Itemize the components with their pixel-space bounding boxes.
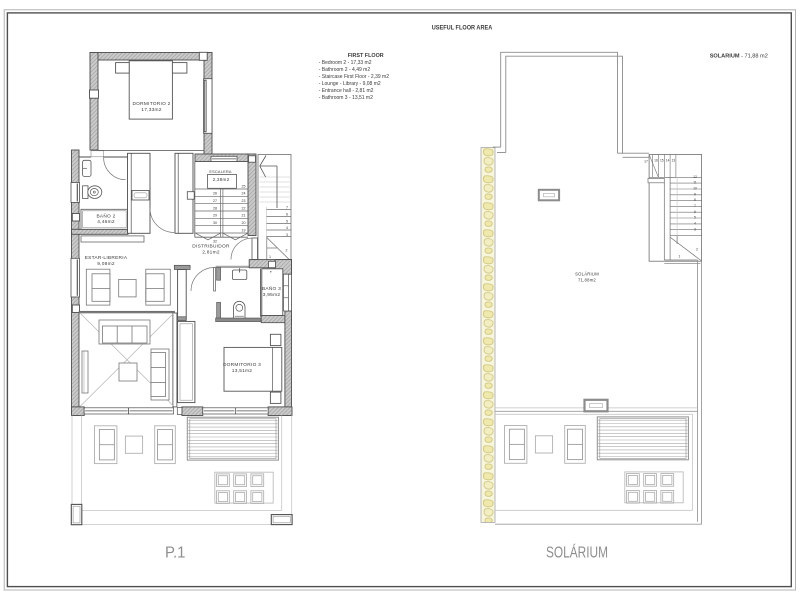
svg-text:26: 26 — [213, 192, 217, 196]
svg-text:2: 2 — [286, 249, 288, 253]
svg-text:- Staircase First Floor - 2,39: - Staircase First Floor - 2,39 m2 — [319, 74, 390, 80]
svg-text:SOLARIUM - 71,88 m2: SOLARIUM - 71,88 m2 — [710, 53, 768, 59]
svg-text:13,51m2: 13,51m2 — [232, 368, 252, 374]
svg-text:28: 28 — [213, 206, 217, 210]
svg-text:4,46m2: 4,46m2 — [97, 219, 115, 225]
svg-text:23: 23 — [242, 199, 246, 203]
svg-text:15: 15 — [660, 158, 664, 162]
svg-text:9,08m2: 9,08m2 — [97, 261, 115, 267]
svg-text:3: 3 — [694, 227, 696, 231]
svg-text:DORMITORIO 3: DORMITORIO 3 — [223, 362, 261, 368]
svg-text:4: 4 — [286, 226, 288, 230]
svg-text:20: 20 — [242, 221, 246, 225]
svg-text:29: 29 — [213, 214, 217, 218]
svg-text:- Lounge - Library - 9,08 m2: - Lounge - Library - 9,08 m2 — [319, 81, 381, 87]
svg-text:P.1: P.1 — [165, 545, 186, 562]
svg-text:BAÑO 3: BAÑO 3 — [262, 285, 281, 292]
svg-text:6: 6 — [286, 213, 288, 217]
svg-text:DISTRIBUIDOR: DISTRIBUIDOR — [192, 244, 230, 250]
svg-text:14: 14 — [666, 158, 670, 162]
svg-text:25: 25 — [242, 184, 246, 188]
svg-text:FIRST FLOOR: FIRST FLOOR — [348, 53, 384, 59]
svg-text:SOLÁRIUM: SOLÁRIUM — [575, 271, 599, 276]
svg-text:22: 22 — [242, 206, 246, 210]
svg-text:8: 8 — [694, 198, 696, 202]
svg-text:5: 5 — [694, 216, 696, 220]
svg-text:- Bathroom 3 - 13,51 m2: - Bathroom 3 - 13,51 m2 — [319, 95, 373, 101]
svg-text:2,38m2: 2,38m2 — [213, 177, 230, 182]
svg-text:17: 17 — [644, 159, 648, 163]
svg-text:10: 10 — [693, 187, 697, 191]
svg-text:30: 30 — [213, 221, 217, 225]
svg-text:- Bathroom 2 - 4,49 m2: - Bathroom 2 - 4,49 m2 — [319, 67, 371, 73]
svg-text:USEFUL FLOOR AREA: USEFUL FLOOR AREA — [432, 25, 493, 32]
svg-text:BAÑO 2: BAÑO 2 — [96, 213, 115, 220]
svg-text:3: 3 — [286, 233, 288, 237]
svg-text:16: 16 — [654, 158, 658, 162]
svg-text:32: 32 — [213, 240, 217, 244]
svg-text:5: 5 — [286, 220, 288, 224]
svg-text:2: 2 — [696, 248, 698, 252]
svg-text:71,88m2: 71,88m2 — [578, 277, 596, 282]
svg-text:6: 6 — [694, 210, 696, 214]
svg-text:24: 24 — [242, 192, 246, 196]
svg-text:7: 7 — [694, 204, 696, 208]
svg-text:19: 19 — [242, 228, 246, 232]
svg-text:ESTAR-LIBRERIA: ESTAR-LIBRERIA — [85, 255, 128, 261]
svg-text:12: 12 — [693, 175, 697, 179]
svg-text:SOLÁRIUM: SOLÁRIUM — [546, 545, 608, 562]
svg-text:7: 7 — [286, 206, 288, 210]
svg-text:17,33m2: 17,33m2 — [141, 107, 161, 113]
svg-text:13: 13 — [672, 158, 676, 162]
svg-text:4: 4 — [694, 222, 696, 226]
svg-text:1: 1 — [269, 255, 271, 259]
svg-text:- Bedroom 2 - 17,33 m2: - Bedroom 2 - 17,33 m2 — [319, 60, 372, 66]
svg-text:2,81m2: 2,81m2 — [202, 250, 220, 256]
svg-text:1: 1 — [679, 255, 681, 259]
svg-text:27: 27 — [213, 199, 217, 203]
svg-text:11: 11 — [693, 181, 697, 185]
svg-text:21: 21 — [242, 214, 246, 218]
svg-text:3,95m2: 3,95m2 — [263, 292, 281, 298]
svg-text:DORMITORIO 2: DORMITORIO 2 — [132, 101, 170, 107]
svg-text:- Entrance hall - 2,81 m2: - Entrance hall - 2,81 m2 — [319, 88, 374, 94]
svg-text:ESCALERA: ESCALERA — [209, 169, 232, 174]
svg-text:9: 9 — [694, 192, 696, 196]
